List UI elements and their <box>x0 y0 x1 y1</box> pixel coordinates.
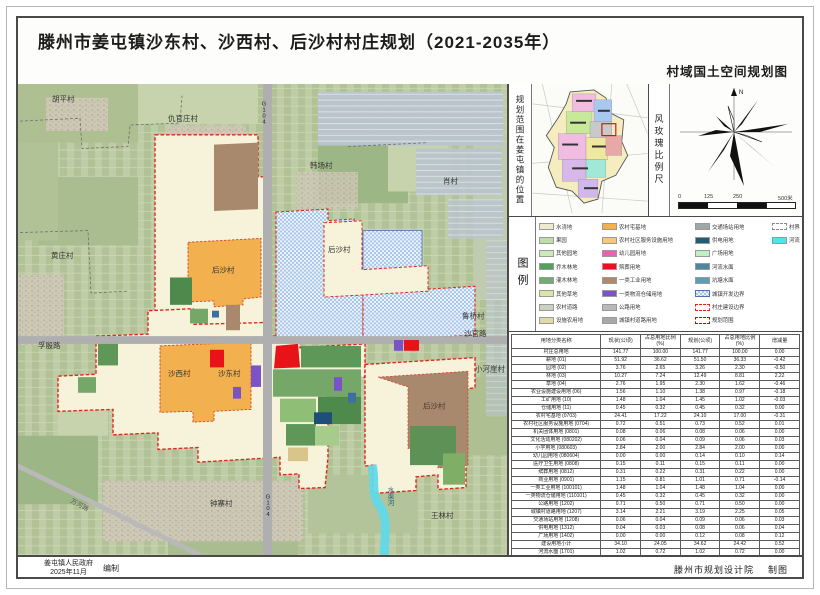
landuse-name: 广场用地 (1402) <box>512 533 601 541</box>
landuse-value: 2.65 <box>641 365 681 373</box>
landuse-name: 城镇村道路用地 (1207) <box>512 509 601 517</box>
landuse-value: 1.04 <box>720 485 760 493</box>
landuse-value: 12.49 <box>680 373 720 381</box>
legend-swatch <box>695 237 710 244</box>
landuse-value: 17.22 <box>641 413 681 421</box>
legend-label: 村庄建设边界 <box>712 303 744 311</box>
legend-title: 图例 <box>509 217 536 331</box>
village-label: 沙西村 <box>168 368 191 378</box>
landuse-value: 2.30 <box>720 365 760 373</box>
legend-label: 公路用地 <box>619 303 641 311</box>
table-row: 农村宅基地 (0703)24.4117.2224.1017.00-0.31 <box>512 413 800 421</box>
landuse-value: 3.14 <box>601 509 641 517</box>
legend-label: 一类物流仓储用地 <box>619 290 662 298</box>
landuse-value: 1.48 <box>601 397 641 405</box>
village-label: 后沙村 <box>212 265 235 275</box>
east-west-road <box>18 336 507 344</box>
landuse-value: 3.19 <box>680 509 720 517</box>
landuse-value: 0.00 <box>641 533 681 541</box>
legend-label: 农村宅基地 <box>619 223 646 231</box>
landuse-value: -0.46 <box>760 381 800 389</box>
legend-swatch <box>602 317 617 324</box>
landuse-value: -0.03 <box>760 397 800 405</box>
north-arrow <box>731 88 737 96</box>
rose-petals <box>698 100 788 186</box>
wind-rose: N <box>670 84 800 189</box>
landuse-name: 耕地 (01) <box>512 357 601 365</box>
landuse-value: 0.03 <box>760 437 800 445</box>
landuse-value: 1.45 <box>680 397 720 405</box>
landuse-value: 1.62 <box>720 381 760 389</box>
sidebar: 规划范围在姜屯镇的位置 <box>507 84 802 555</box>
landuse-value: 2.84 <box>680 445 720 453</box>
legend-item: 坑塘水面 <box>695 274 771 287</box>
scale-tick: 250 <box>733 194 742 200</box>
landuse-value: 0.32 <box>641 493 681 501</box>
landuse-value: 0.04 <box>641 437 681 445</box>
legend-label: 其他园地 <box>556 249 578 257</box>
footer-bar: 姜屯镇人民政府 2025年11月 编制 滕州市规划设计院 制图 <box>18 555 802 577</box>
landuse-value: 0.04 <box>760 525 800 533</box>
landuse-value: 0.00 <box>760 445 800 453</box>
landuse-value: 0.14 <box>680 453 720 461</box>
urban-development-zone-east-arm <box>363 286 475 341</box>
drafting-org: 滕州市规划设计院 <box>674 563 754 576</box>
landuse-name: 农业设施建设用地 (06) <box>512 389 601 397</box>
scale-tick: 125 <box>704 194 713 200</box>
table-row: 幼儿园用地 (080604)0.000.000.140.100.14 <box>512 453 800 461</box>
legend-section: 图例 水浇地果园其他园地乔木林地灌木林地其他草地农村道路设施农用地农村宅基地农村… <box>509 217 802 332</box>
landuse-value: 0.06 <box>601 517 641 525</box>
legend-label: 灌木林地 <box>556 276 578 284</box>
landuse-value: 2.84 <box>601 445 641 453</box>
legend-item: 其他草地 <box>539 287 601 300</box>
landuse-value: 0.22 <box>720 469 760 477</box>
landuse-value: 0.00 <box>601 453 641 461</box>
landuse-value: 2.22 <box>760 373 800 381</box>
landuse-value: 1.95 <box>641 381 681 389</box>
legend-item: 一类工业用地 <box>602 274 694 287</box>
landuse-value: 0.00 <box>760 405 800 413</box>
legend-column: 水浇地果园其他园地乔木林地灌木林地其他草地农村道路设施农用地 <box>539 220 601 329</box>
legend-label: 村界 <box>789 223 800 231</box>
landuse-value: 0.00 <box>601 533 641 541</box>
landuse-value: 24.41 <box>601 413 641 421</box>
landuse-value: 0.52 <box>760 541 800 549</box>
village-label: 沙东村 <box>218 368 241 378</box>
legend-swatch <box>602 263 617 270</box>
table-row: 仓储用地 (11)0.450.320.450.320.00 <box>512 405 800 413</box>
landuse-value: 1.02 <box>720 397 760 405</box>
landuse-value: -0.42 <box>760 357 800 365</box>
legend-column: 农村宅基地农村社区服务设施用地幼儿园用地殡葬用地一类工业用地一类物流仓储用地公路… <box>602 220 694 329</box>
table-row: 商业用地 (0901)1.150.811.010.71-0.14 <box>512 477 800 485</box>
landuse-value: 51.50 <box>680 357 720 365</box>
legend-label: 农村社区服务设施用地 <box>619 236 673 244</box>
landuse-value: 0.00 <box>641 453 681 461</box>
compiling-org: 姜屯镇人民政府 2025年11月 <box>44 560 93 578</box>
road-label: 沙官路 <box>464 328 487 338</box>
legend-item: 殡葬用地 <box>602 260 694 273</box>
legend-item: 农村道路 <box>539 300 601 313</box>
landuse-value: 0.45 <box>680 493 720 501</box>
legend-item: 灌木林地 <box>539 274 601 287</box>
landuse-value: 0.73 <box>680 421 720 429</box>
landuse-name: 公路用地 (1202) <box>512 501 601 509</box>
village-label: 仇官庄村 <box>168 113 199 123</box>
scale-tick: 500米 <box>778 194 793 202</box>
landuse-value: 0.45 <box>601 493 641 501</box>
village-label: 后沙村 <box>328 244 351 254</box>
residential-shaxi-shadong <box>160 342 251 422</box>
legend-item: 设施农用地 <box>539 314 601 327</box>
landuse-value: 34.62 <box>680 541 720 549</box>
g104-road <box>263 84 272 555</box>
table-row: 草地 (04)2.761.952.301.62-0.46 <box>512 381 800 389</box>
legend-column: 交通场站用地供电用地广场用地河流水面坑塘水面城镇开发边界村庄建设边界规划范围 <box>695 220 771 329</box>
landuse-name: 园地 (02) <box>512 365 601 373</box>
landuse-name: 草地 (04) <box>512 381 601 389</box>
legend-swatch <box>772 223 787 230</box>
landuse-value: 1.10 <box>641 389 681 397</box>
landuse-value: 0.08 <box>680 429 720 437</box>
landuse-value: 0.72 <box>601 421 641 429</box>
landuse-name: 机关团体用地 (0801) <box>512 429 601 437</box>
village-label: 钟寨村 <box>210 498 233 508</box>
landuse-value: 24.42 <box>720 541 760 549</box>
landuse-value: 0.71 <box>601 501 641 509</box>
legend-item: 乔木林地 <box>539 260 601 273</box>
legend-label: 河流 <box>789 236 800 244</box>
page-subtitle: 村域国土空间规划图 <box>666 61 788 80</box>
landuse-value: 17.00 <box>720 413 760 421</box>
landuse-name: 交通场站用地 (1208) <box>512 517 601 525</box>
village-planning-map: 胡平村 仇官庄村 韩场村 肖村 黄庄村 孚殷路 后沙村 后沙村 沙西村 沙东村 … <box>18 84 507 555</box>
landuse-value: 141.77 <box>601 349 641 357</box>
landuse-value: 0.06 <box>601 437 641 445</box>
landuse-value: 0.15 <box>680 461 720 469</box>
compiling-org-name: 姜屯镇人民政府 <box>44 560 93 569</box>
table-row: 殡葬用地 (0812)0.310.220.310.220.00 <box>512 469 800 477</box>
legend-item: 城镇村道路用地 <box>602 314 694 327</box>
g104-label-bottom: G104 <box>265 494 271 518</box>
landuse-value: 7.24 <box>641 373 681 381</box>
landuse-value: 0.12 <box>760 533 800 541</box>
landuse-value: 1.48 <box>601 485 641 493</box>
table-row: 园地 (02)3.762.653.262.30-0.50 <box>512 365 800 373</box>
landuse-value: 0.52 <box>720 421 760 429</box>
legend-label: 河流水面 <box>712 263 734 271</box>
table-row: 村庄总用地141.77100.00141.77100.000.00 <box>512 349 800 357</box>
windrose-section-label: 风玫瑰比例尺 <box>649 84 670 216</box>
col-header: 用地分类名称 <box>512 335 601 349</box>
landuse-value: 0.09 <box>680 437 720 445</box>
landuse-value: 0.22 <box>641 469 681 477</box>
compiling-date: 2025年11月 <box>44 569 93 578</box>
table-row: 交通场站用地 (1208)0.060.040.090.060.03 <box>512 517 800 525</box>
landuse-value: 141.77 <box>680 349 720 357</box>
legend-swatch <box>695 250 710 257</box>
post-road-patches <box>394 340 419 351</box>
landuse-table-body: 村庄总用地141.77100.00141.77100.000.00耕地 (01)… <box>512 349 800 556</box>
legend-item: 规划范围 <box>695 314 771 327</box>
landuse-value: 0.31 <box>601 469 641 477</box>
landuse-value: -0.50 <box>760 365 800 373</box>
landuse-value: 1.04 <box>641 485 681 493</box>
table-row: 广场用地 (1402)0.000.000.120.080.12 <box>512 533 800 541</box>
landuse-value: 1.48 <box>680 485 720 493</box>
landuse-value: 36.62 <box>641 357 681 365</box>
table-row: 机关团体用地 (0801)0.080.060.080.060.00 <box>512 429 800 437</box>
legend-item: 河流水面 <box>695 260 771 273</box>
windrose-box: N <box>670 84 802 216</box>
table-row: 一类物流仓储用地 (110101)0.450.320.450.320.00 <box>512 493 800 501</box>
table-row: 农业设施建设用地 (06)1.561.101.380.97-0.18 <box>512 389 800 397</box>
landuse-name: 农村宅基地 (0703) <box>512 413 601 421</box>
cemetery-central <box>274 344 300 368</box>
location-windrose-section: 规划范围在姜屯镇的位置 <box>509 84 802 217</box>
landuse-name: 幼儿园用地 (080604) <box>512 453 601 461</box>
legend-item: 供电用地 <box>695 233 771 246</box>
landuse-value: 2.00 <box>641 445 681 453</box>
landuse-name: 一类物流仓储用地 (110101) <box>512 493 601 501</box>
col-header: 规划(公顷) <box>680 335 720 349</box>
landuse-value: 2.76 <box>601 381 641 389</box>
town-inset-map <box>532 84 648 213</box>
landuse-name: 农村社区服务设施用地 (0704) <box>512 421 601 429</box>
landuse-value: 1.15 <box>601 477 641 485</box>
legend-label: 农村道路 <box>556 303 578 311</box>
landuse-value: 24.05 <box>641 541 681 549</box>
table-header-row: 用地分类名称 现状(公顷) 占总用地比例(%) 规划(公顷) 占总用地比例(%)… <box>512 335 800 349</box>
legend-swatch <box>539 223 554 230</box>
table-row: 一类工业用地 (100101)1.481.041.481.040.00 <box>512 485 800 493</box>
landuse-value: 0.12 <box>680 533 720 541</box>
table-row: 小学用地 (080603)2.842.002.842.000.00 <box>512 445 800 453</box>
legend-item: 城镇开发边界 <box>695 287 771 300</box>
landuse-value: 1.01 <box>680 477 720 485</box>
legend-item: 果园 <box>539 233 601 246</box>
landuse-value: 0.00 <box>760 501 800 509</box>
landuse-value: 0.06 <box>720 429 760 437</box>
legend-swatch <box>695 263 710 270</box>
river-label: 水渠河 <box>386 485 393 506</box>
landuse-value: 0.50 <box>720 501 760 509</box>
landuse-value: 0.08 <box>601 429 641 437</box>
scale-tick: 0 <box>678 194 681 200</box>
legend-item: 村界 <box>772 220 808 233</box>
landuse-value: 0.31 <box>680 469 720 477</box>
legend-item: 水浇地 <box>539 220 601 233</box>
landuse-value: 51.92 <box>601 357 641 365</box>
legend-label: 水浇地 <box>556 223 572 231</box>
landuse-value: 0.06 <box>720 517 760 525</box>
legend-label: 一类工业用地 <box>619 276 651 284</box>
rose-petals-outline <box>728 106 762 142</box>
landuse-value: 100.00 <box>641 349 681 357</box>
landuse-value: 2.25 <box>720 509 760 517</box>
legend-swatch <box>539 250 554 257</box>
col-header: 占总用地比例(%) <box>641 335 681 349</box>
landuse-value: 1.56 <box>601 389 641 397</box>
landuse-name: 医疗卫生用地 (0808) <box>512 461 601 469</box>
village-label: 王林村 <box>431 510 454 520</box>
landuse-value: 0.08 <box>680 525 720 533</box>
landuse-value: 0.01 <box>760 421 800 429</box>
table-row: 城镇村道路用地 (1207)3.142.213.192.250.05 <box>512 509 800 517</box>
landuse-value: 0.04 <box>601 525 641 533</box>
scale-ticks: 0 125 250 500米 <box>678 194 796 201</box>
landuse-name: 工矿用地 (10) <box>512 397 601 405</box>
scale-bar: 0 125 250 500米 <box>678 194 796 210</box>
landuse-value: 0.06 <box>720 437 760 445</box>
landuse-value: 0.05 <box>760 509 800 517</box>
page-title: 滕州市姜屯镇沙东村、沙西村、后沙村村庄规划（2021-2035年） <box>38 28 560 53</box>
landuse-name: 供电用地 (1312) <box>512 525 601 533</box>
landuse-value: 0.45 <box>680 405 720 413</box>
col-header: 现状(公顷) <box>601 335 641 349</box>
landuse-value: 1.38 <box>680 389 720 397</box>
landuse-name: 村庄总用地 <box>512 349 601 357</box>
village-label: 韩场村 <box>310 160 333 170</box>
village-label: 后沙村 <box>423 401 446 411</box>
legend-item: 交通场站用地 <box>695 220 771 233</box>
landuse-value: 0.04 <box>641 517 681 525</box>
legend-label: 城镇村道路用地 <box>619 316 657 324</box>
legend-label: 交通场站用地 <box>712 223 744 231</box>
village-label: 鲁桥村 <box>462 311 485 321</box>
legend-item: 广场用地 <box>695 247 771 260</box>
legend-swatch <box>772 237 787 244</box>
col-header: 占总用地比例(%) <box>720 335 760 349</box>
north-letter: N <box>739 90 743 96</box>
legend-swatch <box>539 290 554 297</box>
legend-swatch <box>602 237 617 244</box>
landuse-value: 0.71 <box>720 477 760 485</box>
legend-label: 设施农用地 <box>556 316 583 324</box>
table-row: 林地 (03)10.277.2412.498.812.22 <box>512 373 800 381</box>
industrial-area-north <box>214 143 258 211</box>
landuse-value: 0.00 <box>760 469 800 477</box>
landuse-value: -0.18 <box>760 389 800 397</box>
landuse-value: 0.06 <box>720 525 760 533</box>
landuse-name: 文化活动用地 (080202) <box>512 437 601 445</box>
landuse-value: 100.00 <box>720 349 760 357</box>
village-label: 黄庄村 <box>51 250 74 260</box>
landuse-value: -0.14 <box>760 477 800 485</box>
road-label: 孚殷路 <box>38 340 61 350</box>
landuse-value: 0.03 <box>760 517 800 525</box>
legend-swatch <box>539 237 554 244</box>
legend-item: 河流 <box>772 233 808 246</box>
plan-sheet: 滕州市姜屯镇沙东村、沙西村、后沙村村庄规划（2021-2035年） 村域国土空间… <box>0 0 820 595</box>
legend-swatch <box>695 290 710 297</box>
village-label: 肖村 <box>443 176 459 186</box>
landuse-value: 0.08 <box>720 533 760 541</box>
drafting-role: 制图 <box>768 563 788 576</box>
scale-bar-segments <box>678 202 796 209</box>
landuse-value: 24.10 <box>680 413 720 421</box>
legend-column: 村界河流 <box>772 220 808 329</box>
legend-swatch <box>539 263 554 270</box>
g104-label-top: G104 <box>261 102 267 126</box>
landuse-value: 0.00 <box>760 429 800 437</box>
landuse-table: 用地分类名称 现状(公顷) 占总用地比例(%) 规划(公顷) 占总用地比例(%)… <box>511 334 800 555</box>
table-row: 医疗卫生用地 (0808)0.150.110.150.110.00 <box>512 461 800 469</box>
landuse-name: 林地 (03) <box>512 373 601 381</box>
landuse-value: 0.03 <box>641 525 681 533</box>
village-label: 小河崖村 <box>475 363 506 373</box>
landuse-value: -0.31 <box>760 413 800 421</box>
landuse-value: 0.15 <box>601 461 641 469</box>
landuse-value: 0.71 <box>680 501 720 509</box>
landuse-value: 36.33 <box>720 357 760 365</box>
town-location-inset <box>532 84 649 216</box>
landuse-value: 0.11 <box>641 461 681 469</box>
legend-label: 坑塘水面 <box>712 276 734 284</box>
landuse-value: 2.30 <box>680 381 720 389</box>
legend-swatch <box>695 223 710 230</box>
table-row: 建设用地小计34.1024.0534.6224.420.52 <box>512 541 800 549</box>
landuse-value: 0.00 <box>760 493 800 501</box>
legend-item: 公路用地 <box>602 300 694 313</box>
title-bar: 滕州市姜屯镇沙东村、沙西村、后沙村村庄规划（2021-2035年） 村域国土空间… <box>18 18 802 86</box>
landuse-value: 2.21 <box>641 509 681 517</box>
landuse-value: 0.97 <box>720 389 760 397</box>
legend-label: 殡葬用地 <box>619 263 641 271</box>
col-header: 增减量 <box>760 335 800 349</box>
legend-swatch <box>602 290 617 297</box>
village-label: 胡平村 <box>52 94 75 104</box>
main-map-panel: 胡平村 仇官庄村 韩场村 肖村 黄庄村 孚殷路 后沙村 后沙村 沙西村 沙东村 … <box>18 84 507 555</box>
landuse-value: 0.06 <box>641 429 681 437</box>
landuse-name: 一类工业用地 (100101) <box>512 485 601 493</box>
legend-swatch <box>602 277 617 284</box>
landuse-value: 0.14 <box>760 453 800 461</box>
landuse-value: 8.81 <box>720 373 760 381</box>
landuse-value: 3.26 <box>680 365 720 373</box>
legend-swatch <box>539 304 554 311</box>
legend-columns: 水浇地果园其他园地乔木林地灌木林地其他草地农村道路设施农用地农村宅基地农村社区服… <box>536 217 810 331</box>
legend-item: 农村宅基地 <box>602 220 694 233</box>
landuse-name: 仓储用地 (11) <box>512 405 601 413</box>
location-section-label: 规划范围在姜屯镇的位置 <box>509 84 532 216</box>
landuse-value: 0.50 <box>641 501 681 509</box>
legend-item: 农村社区服务设施用地 <box>602 233 694 246</box>
compiling-role: 编制 <box>103 563 119 574</box>
table-row: 耕地 (01)51.9236.6251.5036.33-0.42 <box>512 357 800 365</box>
table-row: 公路用地 (1202)0.710.500.710.500.00 <box>512 501 800 509</box>
landuse-value: 34.10 <box>601 541 641 549</box>
footer-right: 滕州市规划设计院 制图 <box>674 563 788 576</box>
landuse-value: 0.09 <box>680 517 720 525</box>
legend-item: 幼儿园用地 <box>602 247 694 260</box>
landuse-value: 0.00 <box>760 461 800 469</box>
landuse-value: 2.00 <box>720 445 760 453</box>
legend-swatch <box>539 317 554 324</box>
legend-swatch <box>695 304 710 311</box>
legend-label: 城镇开发边界 <box>712 290 744 298</box>
landuse-table-section: 用地分类名称 现状(公顷) 占总用地比例(%) 规划(公顷) 占总用地比例(%)… <box>509 332 802 555</box>
legend-label: 果园 <box>556 236 567 244</box>
landuse-value: 0.32 <box>641 405 681 413</box>
legend-swatch <box>602 250 617 257</box>
landuse-value: 0.81 <box>641 477 681 485</box>
table-row: 农村社区服务设施用地 (0704)0.720.510.730.520.01 <box>512 421 800 429</box>
legend-swatch <box>539 277 554 284</box>
legend-swatch <box>695 277 710 284</box>
legend-label: 乔木林地 <box>556 263 578 271</box>
